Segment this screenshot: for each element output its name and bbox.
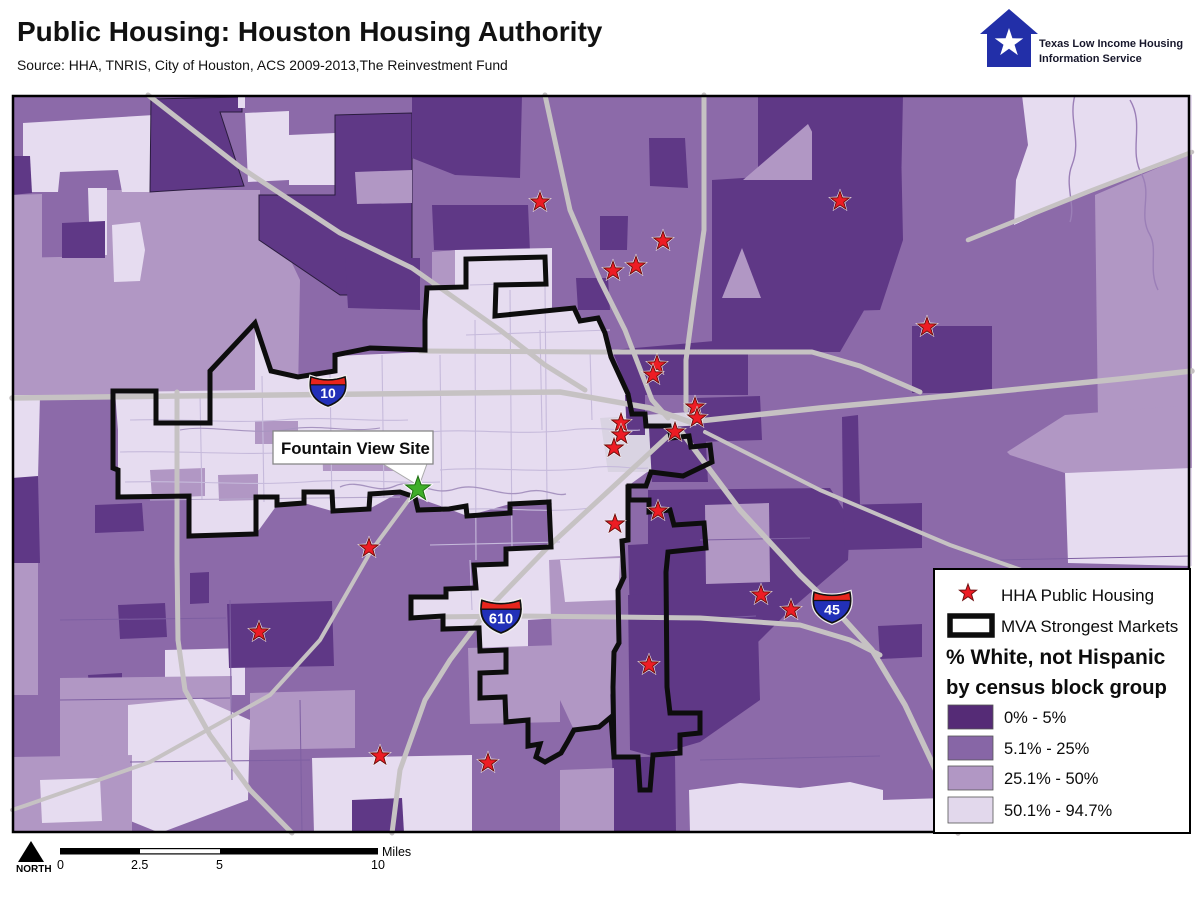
svg-text:25.1% - 50%: 25.1% - 50% [1004,770,1099,788]
svg-text:45: 45 [824,602,840,618]
svg-text:10: 10 [371,858,385,872]
svg-text:by census block group: by census block group [946,677,1167,699]
svg-text:Texas Low Income Housing: Texas Low Income Housing [1039,38,1183,50]
svg-text:5: 5 [216,858,223,872]
svg-text:Miles: Miles [382,845,411,859]
svg-text:0% - 5%: 0% - 5% [1004,709,1067,727]
svg-text:Fountain View Site: Fountain View Site [281,439,430,458]
svg-text:5.1% - 25%: 5.1% - 25% [1004,740,1090,758]
svg-text:50.1% - 94.7%: 50.1% - 94.7% [1004,802,1113,820]
svg-text:NORTH: NORTH [16,864,52,875]
svg-text:2.5: 2.5 [131,858,148,872]
svg-text:0: 0 [57,858,64,872]
svg-text:HHA Public Housing: HHA Public Housing [1001,586,1154,605]
svg-text:610: 610 [489,611,513,627]
svg-text:Information Service: Information Service [1039,53,1142,65]
svg-text:MVA Strongest Markets: MVA Strongest Markets [1001,617,1178,636]
svg-text:% White, not Hispanic: % White, not Hispanic [946,646,1166,669]
svg-text:10: 10 [320,385,336,401]
